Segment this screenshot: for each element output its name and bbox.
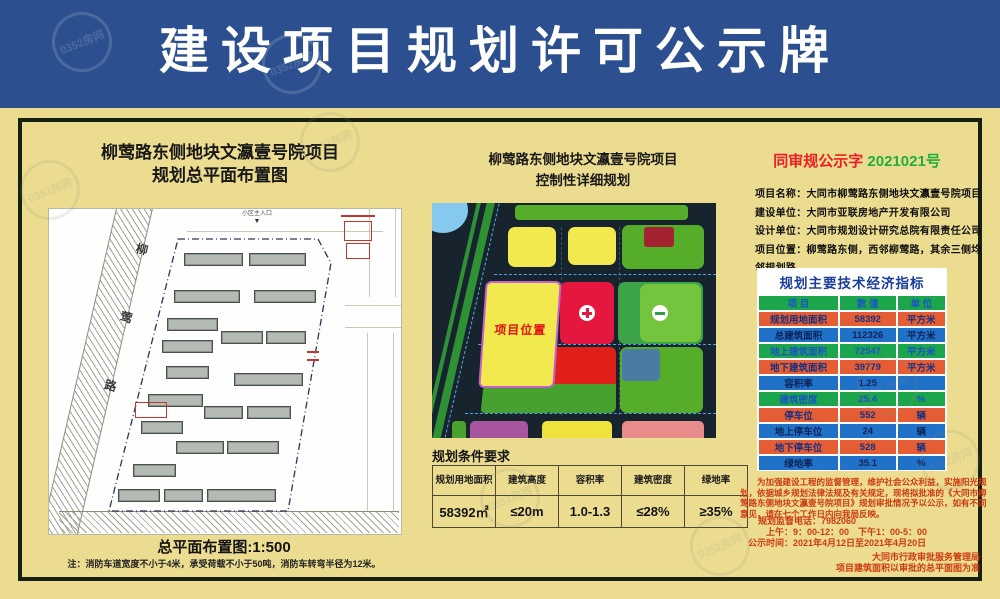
parcel-purple xyxy=(470,421,528,438)
info-value: 大同市规划设计研究总院有限责任公司 xyxy=(807,226,982,237)
conditions-value: ≤20m xyxy=(496,496,559,528)
indicator-cell: 72547 xyxy=(840,344,896,358)
notice-number: 同审规公示字 2021021号 xyxy=(752,150,962,171)
zoning-title: 柳莺路东侧地块文瀛壹号院项目 控制性详细规划 xyxy=(424,150,742,192)
parcel-yellow xyxy=(508,227,556,267)
indicator-cell: 平方米 xyxy=(898,312,945,326)
building-footprint xyxy=(167,318,218,331)
indicator-cell: 58392 xyxy=(840,312,896,326)
banner: 建设项目规划许可公示牌 xyxy=(0,0,1000,108)
info-label: 建设单位： xyxy=(755,208,807,219)
indicator-cell: 容积率 xyxy=(759,376,838,390)
parcel-blue xyxy=(622,349,660,381)
building-footprint xyxy=(133,464,176,477)
plan-scale-caption: 总平面布置图:1:500 xyxy=(48,536,400,557)
building-footprint xyxy=(249,253,306,266)
building-footprint xyxy=(166,366,209,379)
public-notice-text: 为加强建设工程的监督管理，维护社会公众利益，实施阳光规划，依据城乡规划法律法规及… xyxy=(740,477,987,519)
parcel-pink xyxy=(622,421,704,438)
indicator-cell: 总建筑面积 xyxy=(759,328,838,342)
parcel-green xyxy=(452,421,466,438)
parcel-green xyxy=(481,386,554,413)
notice-number-prefix: 同审规公示字 xyxy=(773,153,863,170)
project-info: 项目名称：大同市柳莺路东侧地块文瀛壹号院项目 建设单位：大同市亚联房地产开发有限… xyxy=(755,186,985,279)
conditions-header: 容积率 xyxy=(559,466,622,496)
parcel-hospital xyxy=(560,282,614,344)
phone-line: 规划监督电话：7982060 xyxy=(748,516,987,527)
road-centerline xyxy=(465,413,716,414)
water-area xyxy=(432,203,468,233)
indicator-cell: % xyxy=(898,456,945,470)
building-footprint xyxy=(174,290,240,303)
building-footprint xyxy=(141,421,183,434)
period-line: 公示时间：2021年4月12日至2021年4月20日 xyxy=(748,538,987,549)
indicator-cell: 地上建筑面积 xyxy=(759,344,838,358)
notice-number-value: 2021021号 xyxy=(867,153,940,170)
indicator-cell: 地下停车位 xyxy=(759,440,838,454)
info-label: 项目名称： xyxy=(755,189,807,200)
conditions-title: 规划条件要求 xyxy=(432,446,510,465)
building-footprint xyxy=(176,441,224,454)
info-value: 大同市亚联房地产开发有限公司 xyxy=(807,208,951,219)
agency-name: 大同市行政审批服务管理局 xyxy=(730,552,980,563)
indicator-cell: 辆 xyxy=(898,408,945,422)
entrance-marker: 小区主入口 ▼ xyxy=(237,211,277,227)
indicator-cell: 建筑密度 xyxy=(759,392,838,406)
conditions-header: 建筑密度 xyxy=(622,466,685,496)
school-bar-icon xyxy=(652,305,668,321)
plan-note: 注：消防车道宽度不小于4米，承受荷载不小于50吨，消防车转弯半径为12米。 xyxy=(30,557,418,570)
indicator-cell: 39779 xyxy=(840,360,896,374)
building-footprint xyxy=(234,373,303,386)
indicator-cell: % xyxy=(898,392,945,406)
info-line-designer: 设计单位：大同市规划设计研究总院有限责任公司 xyxy=(755,223,985,242)
parcel-yellow xyxy=(542,421,612,438)
entrance-label: 小区主入口 xyxy=(242,211,272,217)
conditions-value: ≥35% xyxy=(685,496,748,528)
agency-note: 项目建筑面积以审批的总平面图为准 xyxy=(730,563,980,574)
indicator-header-cell: 单 位 xyxy=(898,296,945,310)
parcel-green xyxy=(515,205,688,220)
info-line-project-name: 项目名称：大同市柳莺路东侧地块文瀛壹号院项目 xyxy=(755,186,985,205)
hospital-cross-icon xyxy=(579,305,595,321)
road-centerline xyxy=(494,274,716,275)
parcel-darkred xyxy=(644,227,674,247)
zoning-title-line1: 柳莺路东侧地块文瀛壹号院项目 xyxy=(424,150,742,171)
building-footprint xyxy=(254,290,316,303)
building-footprint xyxy=(266,331,306,344)
conditions-value: 58392㎡ xyxy=(433,496,496,528)
indicator-cell: 552 xyxy=(840,408,896,422)
info-label: 设计单位： xyxy=(755,226,807,237)
parcel-lightgreen xyxy=(640,284,701,342)
site-plan-title-line2: 规划总平面布置图 xyxy=(30,165,410,188)
indicator-cell: 辆 xyxy=(898,440,945,454)
contact-block: 规划监督电话：7982060 上午：9：00-12：00 下午1：00-5：00… xyxy=(748,516,987,548)
indicator-cell: 地下建筑面积 xyxy=(759,360,838,374)
red-annotation-mark xyxy=(307,359,319,361)
indicators-table: 项 目数 值单 位规划用地面积58392平方米总建筑面积112326平方米地上建… xyxy=(757,294,947,472)
building-footprint xyxy=(164,489,203,502)
conditions-value: ≤28% xyxy=(622,496,685,528)
indicator-header-cell: 数 值 xyxy=(840,296,896,310)
notice-board: 建设项目规划许可公示牌 柳莺路东侧地块文瀛壹号院项目 规划总平面布置图 柳莺路 … xyxy=(0,0,1000,599)
indicator-cell: 辆 xyxy=(898,424,945,438)
indicator-cell: 528 xyxy=(840,440,896,454)
page-title: 建设项目规划许可公示牌 xyxy=(0,0,1000,76)
indicator-cell: 112326 xyxy=(840,328,896,342)
indicators-panel: 规划主要技术经济指标 项 目数 值单 位规划用地面积58392平方米总建筑面积1… xyxy=(757,268,947,471)
site-plan-map: 柳莺路 小区主入口 ▼ xyxy=(48,208,402,535)
building-footprint xyxy=(204,406,243,419)
red-annotation-mark xyxy=(341,215,375,217)
indicators-title: 规划主要技术经济指标 xyxy=(757,272,947,292)
building-footprint xyxy=(184,253,243,266)
building-footprint xyxy=(247,406,291,419)
info-label: 项目位置： xyxy=(755,245,807,256)
entrance-arrow-icon: ▼ xyxy=(237,218,277,226)
project-parcel: 项目位置 xyxy=(478,281,561,388)
conditions-table: 规划用地面积 建筑高度 容积率 建筑密度 绿地率 58392㎡ ≤20m 1.0… xyxy=(432,465,748,528)
building-footprint xyxy=(118,489,160,502)
conditions-header: 绿地率 xyxy=(685,466,748,496)
indicator-cell: 规划用地面积 xyxy=(759,312,838,326)
indicator-cell: 绿地率 xyxy=(759,456,838,470)
red-annotation-box xyxy=(346,243,370,259)
zoning-map: 项目位置 xyxy=(432,203,716,438)
project-location-label: 项目位置 xyxy=(484,321,557,338)
conditions-value: 1.0-1.3 xyxy=(559,496,622,528)
building-footprint xyxy=(162,340,213,353)
info-value: 大同市柳莺路东侧地块文瀛壹号院项目 xyxy=(807,189,982,200)
building-footprint xyxy=(227,441,279,454)
hours-line: 上午：9：00-12：00 下午1：00-5：00 xyxy=(748,527,987,538)
red-annotation-box xyxy=(344,221,372,241)
conditions-header: 建筑高度 xyxy=(496,466,559,496)
conditions-header: 规划用地面积 xyxy=(433,466,496,496)
site-plan-title: 柳莺路东侧地块文瀛壹号院项目 规划总平面布置图 xyxy=(30,142,410,188)
parcel-school xyxy=(618,282,703,344)
building-footprint xyxy=(207,489,276,502)
agency-block: 大同市行政审批服务管理局 项目建筑面积以审批的总平面图为准 xyxy=(730,552,980,574)
indicator-cell: 停车位 xyxy=(759,408,838,422)
building-footprint xyxy=(221,331,263,344)
red-annotation-mark xyxy=(307,351,319,353)
indicator-cell: 平方米 xyxy=(898,344,945,358)
indicator-cell: 25.4 xyxy=(840,392,896,406)
indicator-header-cell: 项 目 xyxy=(759,296,838,310)
info-line-builder: 建设单位：大同市亚联房地产开发有限公司 xyxy=(755,205,985,224)
indicator-cell xyxy=(898,376,945,390)
indicator-cell: 地上停车位 xyxy=(759,424,838,438)
indicator-cell: 1.25 xyxy=(840,376,896,390)
indicator-cell: 35.1 xyxy=(840,456,896,470)
site-plan-title-line1: 柳莺路东侧地块文瀛壹号院项目 xyxy=(30,142,410,165)
parcel-green xyxy=(620,347,703,413)
zoning-title-line2: 控制性详细规划 xyxy=(424,171,742,192)
indicator-cell: 平方米 xyxy=(898,328,945,342)
indicator-cell: 24 xyxy=(840,424,896,438)
parcel-yellow xyxy=(568,227,616,265)
parcel-green xyxy=(546,347,616,413)
indicator-cell: 平方米 xyxy=(898,360,945,374)
red-annotation-box xyxy=(135,402,167,418)
